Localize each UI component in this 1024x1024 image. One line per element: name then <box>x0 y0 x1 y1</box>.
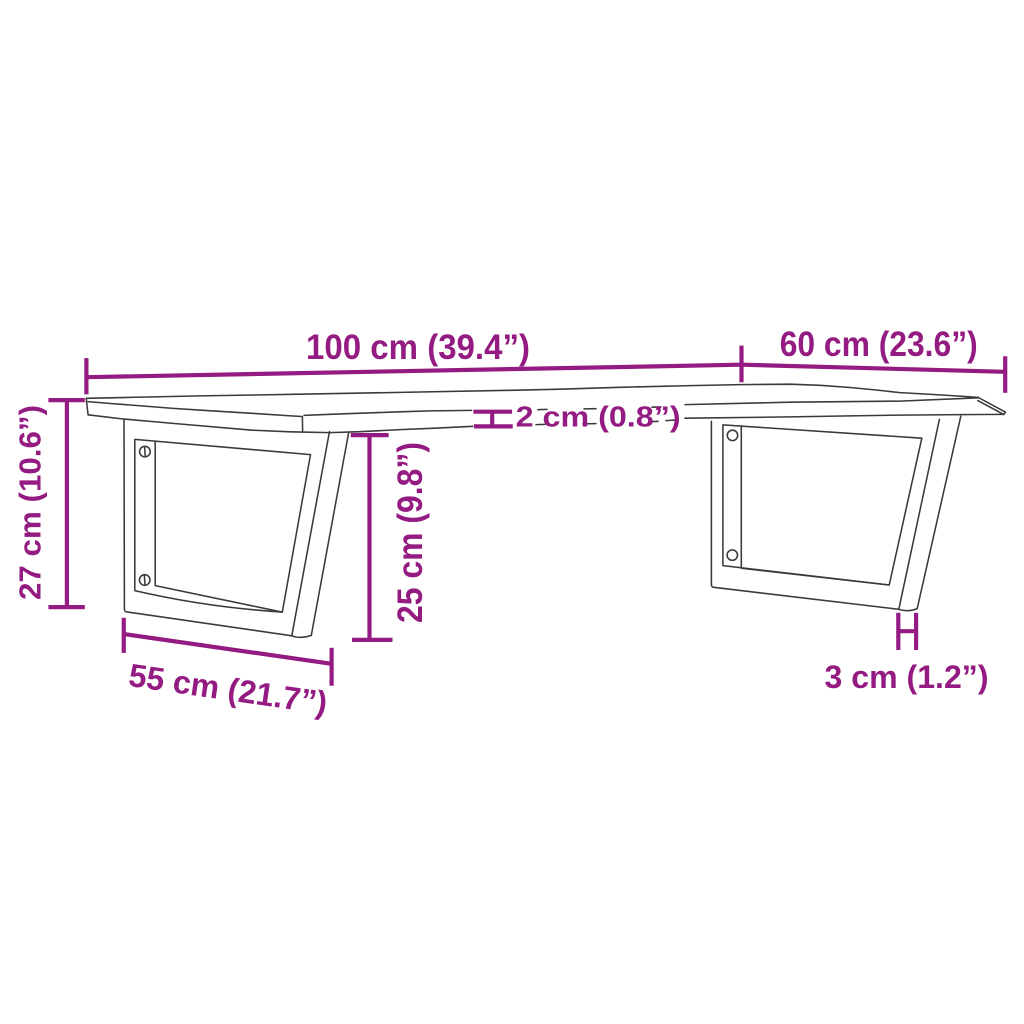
svg-text:2 cm (0.8”): 2 cm (0.8”) <box>516 401 681 433</box>
svg-text:100 cm (39.4”): 100 cm (39.4”) <box>306 328 530 367</box>
svg-text:3 cm (1.2”): 3 cm (1.2”) <box>825 659 989 695</box>
svg-text:27 cm (10.6”): 27 cm (10.6”) <box>13 405 48 600</box>
svg-text:60 cm (23.6”): 60 cm (23.6”) <box>780 324 978 364</box>
svg-text:25 cm (9.8”): 25 cm (9.8”) <box>391 442 430 623</box>
